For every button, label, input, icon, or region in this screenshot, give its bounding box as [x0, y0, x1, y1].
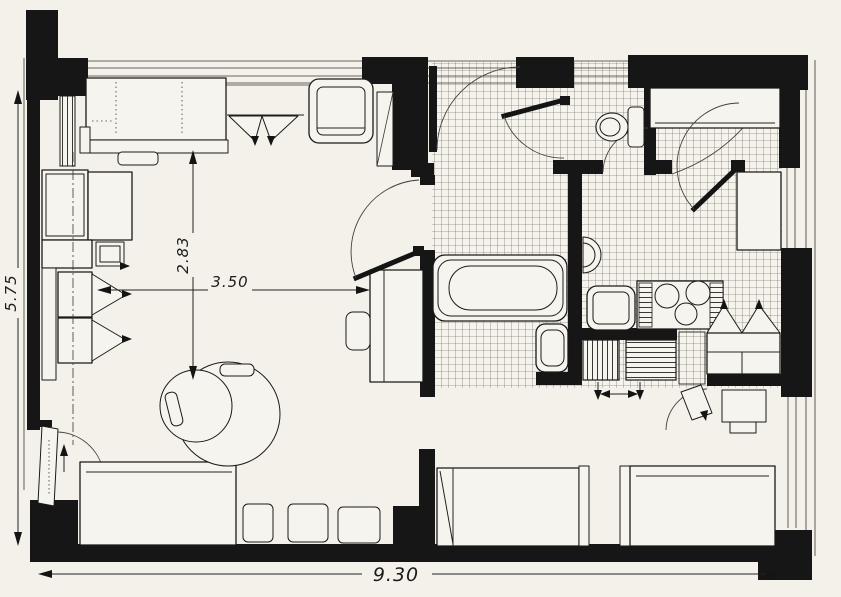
washbasin	[536, 324, 568, 372]
seat-cushions	[243, 504, 380, 543]
stool	[346, 312, 370, 350]
floor-plan-figure: 5.75 9.30 2.83 3.50	[0, 0, 841, 597]
bed	[80, 78, 228, 165]
base-unit-oven	[626, 340, 676, 380]
bed-left	[437, 468, 579, 546]
dim-label-overall-height: 5.75	[2, 274, 20, 311]
sofa	[80, 462, 236, 545]
wardrobe-top	[227, 115, 304, 146]
cabinet-left	[42, 170, 88, 240]
kitchen-sink	[587, 286, 635, 330]
bed-right	[630, 466, 775, 546]
dim-living-depth: 2.83	[174, 150, 197, 380]
side-table	[88, 172, 132, 240]
dim-overall-height: 5.75	[2, 90, 22, 546]
bathtub	[433, 255, 567, 321]
folding-panel	[377, 92, 393, 166]
side-panel	[42, 268, 56, 380]
dim-overall-width: 9.30	[38, 564, 780, 586]
base-unit-dishwasher	[583, 340, 619, 380]
dim-living-width: 3.50	[97, 273, 370, 294]
armchair	[309, 79, 373, 143]
wardrobe-left	[58, 272, 132, 363]
chair-back-top	[220, 364, 254, 376]
stove	[637, 281, 723, 329]
dim-label-overall-width: 9.30	[373, 564, 419, 586]
floor-plan-canvas: 5.75 9.30 2.83 3.50	[0, 0, 841, 597]
low-cabinet	[42, 240, 130, 270]
nightstand	[722, 390, 766, 433]
bed-dividers	[579, 466, 630, 546]
bedroom-door	[666, 385, 712, 430]
dining-table	[160, 362, 280, 466]
kitchen-table	[737, 172, 781, 250]
dim-label-living-width: 3.50	[211, 273, 248, 291]
bathroom-door	[351, 180, 424, 278]
dim-label-living-depth: 2.83	[174, 236, 192, 273]
